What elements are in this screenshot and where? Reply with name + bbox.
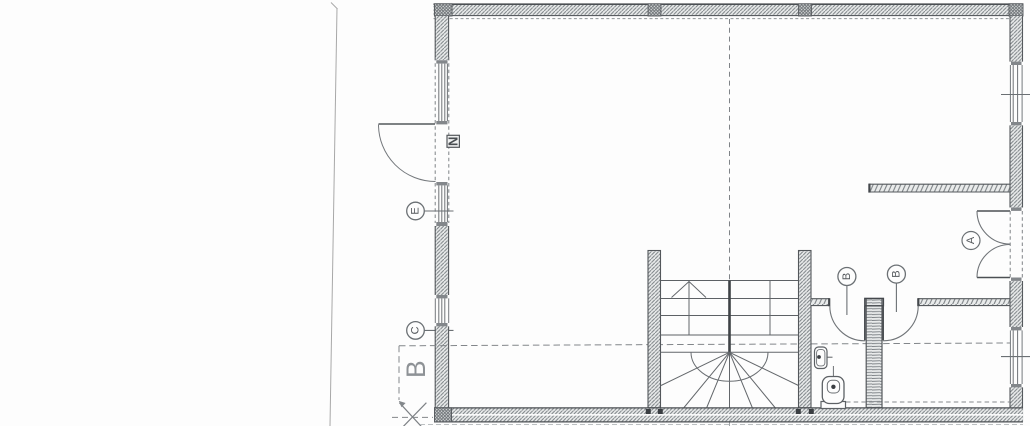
- svg-text:C: C: [410, 326, 422, 334]
- svg-text:B: B: [890, 270, 902, 277]
- svg-text:A: A: [965, 236, 977, 244]
- svg-text:N: N: [446, 137, 461, 146]
- svg-text:B: B: [841, 273, 853, 280]
- svg-text:E: E: [410, 207, 422, 214]
- svg-text:B: B: [401, 360, 431, 378]
